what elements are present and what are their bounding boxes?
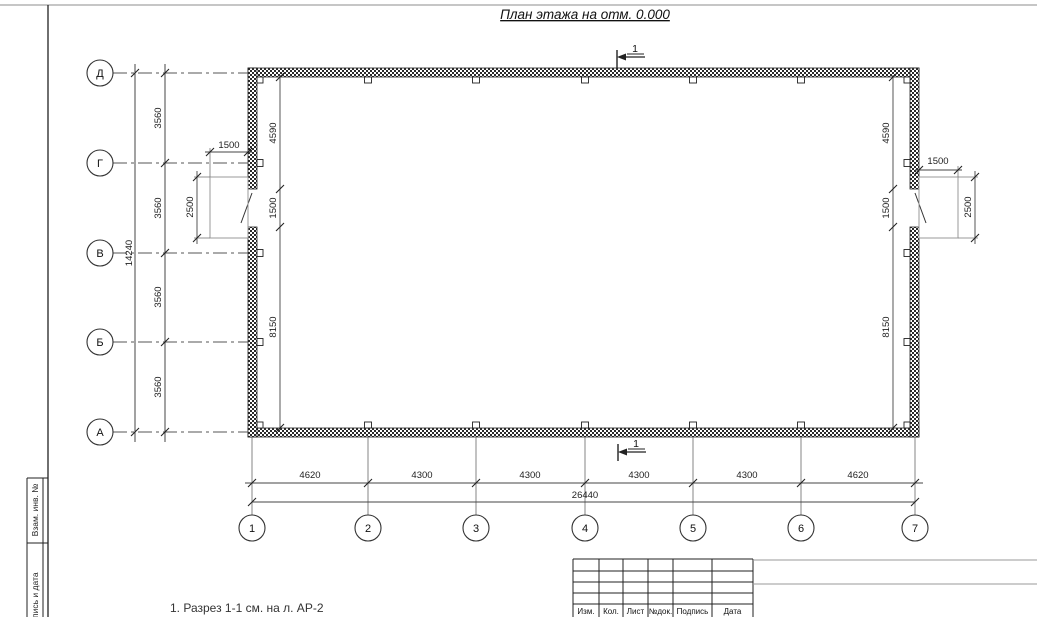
axis-col-4: 5: [690, 523, 696, 535]
dim-col-total: 26440: [572, 490, 598, 501]
section-mark-top: 1: [617, 43, 645, 68]
axis-row-4: А: [96, 427, 104, 439]
dim-porch-right-w: 1500: [927, 156, 948, 167]
dim-right-chain-0: 4590: [881, 122, 892, 143]
tb-header-ndok: №док.: [649, 607, 672, 616]
dim-left-chain-1: 1500: [268, 197, 279, 218]
building-walls: [248, 68, 919, 437]
dim-col-4: 4300: [736, 470, 757, 481]
title-block-headers: Изм. Кол. Лист №док. Подпись Дата: [577, 607, 741, 616]
dim-row-total: 14240: [124, 240, 135, 266]
section-label-bottom: 1: [633, 438, 639, 450]
axis-row-0: Д: [96, 68, 104, 80]
dimension-ticks: [131, 69, 979, 506]
inner-dimension-lines: [280, 75, 893, 430]
dim-col-3: 4300: [628, 470, 649, 481]
door-leaf-right: [915, 193, 926, 223]
pilasters: [257, 77, 910, 428]
axis-row-3: Б: [96, 337, 103, 349]
dim-col-5: 4620: [847, 470, 868, 481]
dim-porch-left-w: 1500: [218, 140, 239, 151]
strip-label-podpis: Подпись и дата: [30, 572, 40, 617]
dim-right-chain-2: 8150: [881, 316, 892, 337]
tb-header-kol: Кол.: [603, 607, 619, 616]
inner-dimension-labels: 4590 1500 8150 4590 1500 8150: [268, 122, 892, 337]
porch-dimension-labels: 1500 2500 1500 2500: [185, 140, 974, 218]
dim-right-chain-1: 1500: [881, 197, 892, 218]
dim-row-0: 3560: [153, 107, 164, 128]
tb-header-izm: Изм.: [577, 607, 594, 616]
drawing-title: План этажа на отм. 0.000: [500, 7, 670, 22]
dim-porch-right-h: 2500: [963, 196, 974, 217]
dim-col-0: 4620: [299, 470, 320, 481]
col-axis-lines: [252, 437, 915, 515]
axis-col-0: 1: [249, 523, 255, 535]
row-axis-bubbles: Д Г В Б А: [87, 60, 113, 445]
dim-row-2: 3560: [153, 286, 164, 307]
axis-col-5: 6: [798, 523, 804, 535]
col-dimension-labels: 4620 4300 4300 4300 4300 4620 26440: [299, 470, 868, 501]
axis-col-6: 7: [912, 523, 918, 535]
tb-header-list: Лист: [627, 607, 645, 616]
axis-col-3: 4: [582, 523, 588, 535]
section-mark-bottom: 1: [618, 438, 646, 461]
tb-header-podpis: Подпись: [677, 607, 709, 616]
side-strip: Взам. инв. № Подпись и дата: [27, 478, 48, 617]
door-leaf-left: [241, 193, 252, 223]
axis-col-1: 2: [365, 523, 371, 535]
row-dimension-labels: 3560 3560 3560 3560 14240: [124, 107, 164, 397]
strip-label-vzam: Взам. инв. №: [30, 484, 40, 537]
tb-header-data: Дата: [724, 607, 742, 616]
dim-left-chain-0: 4590: [268, 122, 279, 143]
section-label-top: 1: [632, 43, 638, 55]
drawing-sheet: Взам. инв. № Подпись и дата План этажа н…: [0, 0, 1037, 617]
dim-col-1: 4300: [411, 470, 432, 481]
axis-col-2: 3: [473, 523, 479, 535]
porch-left: [194, 148, 252, 244]
dim-porch-left-h: 2500: [185, 196, 196, 217]
note-text: 1. Разрез 1-1 см. на л. АР-2: [170, 601, 324, 615]
dim-row-1: 3560: [153, 197, 164, 218]
dim-left-chain-2: 8150: [268, 316, 279, 337]
sheet-frame: [0, 5, 1037, 617]
dim-col-2: 4300: [519, 470, 540, 481]
col-axis-bubbles: 1 2 3 4 5 6 7: [239, 515, 928, 541]
axis-row-1: Г: [97, 158, 103, 170]
dim-row-3: 3560: [153, 376, 164, 397]
floor-plan-canvas: Взам. инв. № Подпись и дата План этажа н…: [0, 0, 1037, 617]
axis-row-2: В: [96, 248, 103, 260]
